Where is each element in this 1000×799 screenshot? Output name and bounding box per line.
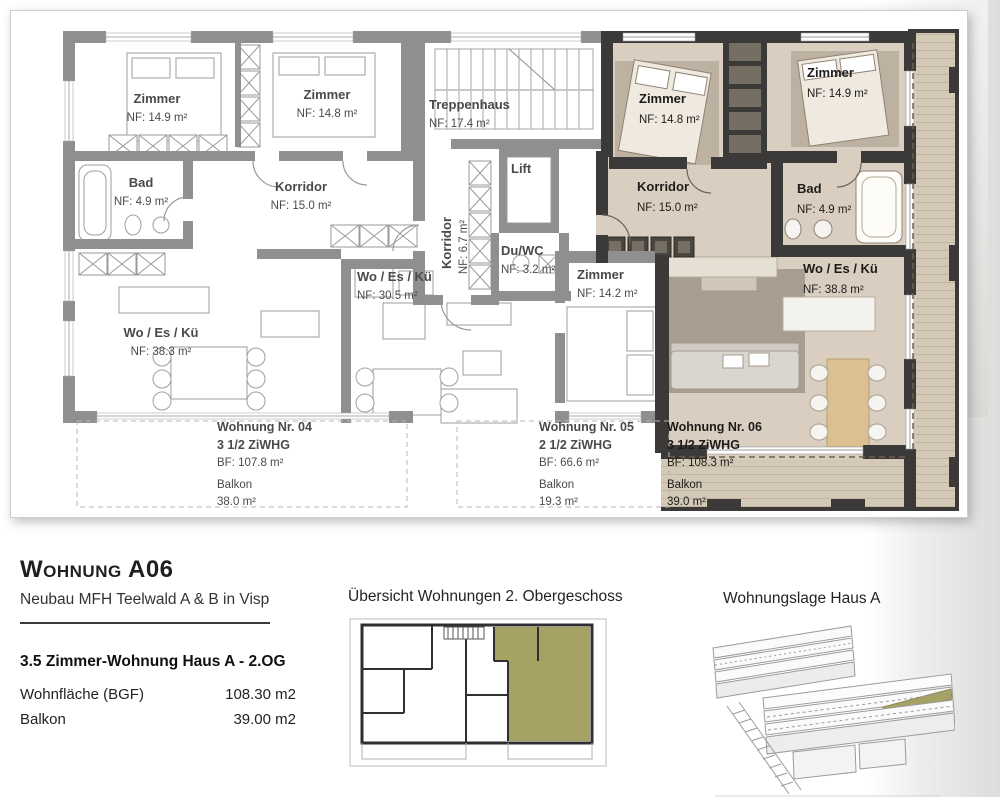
apt05-bf: BF: 66.6 m² <box>539 457 599 469</box>
toilet-symbol <box>125 215 141 235</box>
room-area-apt06-zimmer2: NF: 14.9 m² <box>807 88 868 100</box>
room-label-apt06-zimmer2: Zimmer <box>807 65 854 80</box>
bathtub-symbol <box>856 171 902 243</box>
dining-table-symbol <box>827 359 869 447</box>
sideboard-symbol <box>447 303 511 325</box>
room-area-apt06-bad: NF: 4.9 m² <box>797 204 851 216</box>
apt06-bf: BF: 108.3 m² <box>667 457 734 469</box>
room-area-apt06-zimmer1: NF: 14.8 m² <box>639 114 700 126</box>
room-area-apt04-korridor: NF: 15.0 m² <box>271 200 332 212</box>
room-label-apt04-wek: Wo / Es / Kü <box>124 325 199 340</box>
apt04-title: Wohnung Nr. 04 <box>217 420 312 434</box>
stairs-symbol <box>435 49 593 129</box>
room-area-apt06-korridor: NF: 15.0 m² <box>637 202 698 214</box>
room-label-apt04-korridor: Korridor <box>275 179 327 194</box>
room-label-apt06-korridor: Korridor <box>637 179 689 194</box>
room-area-duwc: NF: 3.2 m² <box>501 264 555 276</box>
room-area-apt05-zimmer: NF: 14.2 m² <box>577 288 638 300</box>
area-table: Wohnfläche (BGF) 108.30 m2 Balkon 39.00 … <box>20 686 296 728</box>
room-area-apt04-zimmer1: NF: 14.9 m² <box>127 112 188 124</box>
bed-symbol <box>618 60 711 164</box>
haus-a-sketch <box>705 614 955 799</box>
sofa-symbol <box>261 311 319 337</box>
overview-mini-plan <box>348 617 608 769</box>
apt05-balkon-label: Balkon <box>539 479 574 491</box>
mini-plan-stairs <box>444 627 484 639</box>
armchair-symbol <box>383 303 425 339</box>
room-label-apt04-bad: Bad <box>129 175 154 190</box>
location-title: Wohnungslage Haus A <box>705 590 967 608</box>
sink-symbol <box>153 217 169 233</box>
kitchen-island-symbol <box>119 287 209 313</box>
room-area-apt05-wek: NF: 30.5 m² <box>357 290 418 302</box>
kitchen-counter-symbol <box>667 257 777 277</box>
apt06-type: 3 1/2 ZiWHG <box>667 438 740 452</box>
sink-symbol <box>814 220 832 238</box>
mini-plan-balconies <box>362 743 592 759</box>
room-label-apt05-wek: Wo / Es / Kü <box>357 269 432 284</box>
room-label-duwc: Du/WC <box>501 243 544 258</box>
room-label-apt05-zimmer: Zimmer <box>577 267 624 282</box>
apt06-balkon-area: 39.0 m² <box>667 496 706 508</box>
apt06-balkon-label: Balkon <box>667 479 702 491</box>
toilet-symbol <box>785 219 801 239</box>
area-value: 39.00 m2 <box>233 711 296 728</box>
room-area-apt06-wek: NF: 38.8 m² <box>803 284 864 296</box>
apt05-type: 2 1/2 ZiWHG <box>539 438 612 452</box>
area-label: Wohnfläche (BGF) <box>20 686 144 703</box>
overview-section: Übersicht Wohnungen 2. Obergeschoss <box>348 588 638 769</box>
apt04-bf: BF: 107.8 m² <box>217 457 284 469</box>
room-label-common-korridor: Korridor <box>439 217 454 269</box>
location-section: Wohnungslage Haus A <box>705 590 967 799</box>
room-area-apt04-wek: NF: 38.3 m² <box>131 346 192 358</box>
apt04-balkon-label: Balkon <box>217 479 252 491</box>
room-label-apt06-wek: Wo / Es / Kü <box>803 261 878 276</box>
apt05-title: Wohnung Nr. 05 <box>539 420 634 434</box>
info-panel: Wohnung A06 Neubau MFH Teelwald A & B in… <box>20 556 310 736</box>
room-label-apt06-bad: Bad <box>797 181 822 196</box>
room-label-treppenhaus: Treppenhaus <box>429 97 510 112</box>
apt04-balkon-area: 38.0 m² <box>217 496 256 508</box>
apt04-type: 3 1/2 ZiWHG <box>217 438 290 452</box>
table-row: Wohnfläche (BGF) 108.30 m2 <box>20 686 296 703</box>
room-area-common-korridor: NF: 6.7 m² <box>458 220 470 274</box>
project-subtitle: Neubau MFH Teelwald A & B in Visp <box>20 591 310 609</box>
room-label-apt04-zimmer1: Zimmer <box>134 91 181 106</box>
area-label: Balkon <box>20 711 66 728</box>
page-title: Wohnung A06 <box>20 556 310 584</box>
room-area-apt04-bad: NF: 4.9 m² <box>114 196 168 208</box>
dining-table-symbol <box>373 369 441 415</box>
floor-plan: Zimmer NF: 14.9 m² Zimmer NF: 14.8 m² Ba… <box>10 10 968 518</box>
closet-column-insets <box>729 43 761 153</box>
room-label-apt04-zimmer2: Zimmer <box>304 87 351 102</box>
overview-title: Übersicht Wohnungen 2. Obergeschoss <box>348 588 638 606</box>
room-label-apt06-zimmer1: Zimmer <box>639 91 686 106</box>
room-area-apt04-zimmer2: NF: 14.8 m² <box>297 108 358 120</box>
area-value: 108.30 m2 <box>225 686 296 703</box>
divider <box>20 622 270 624</box>
kitchen-island-symbol <box>783 297 875 331</box>
room-area-treppenhaus: NF: 17.4 m² <box>429 118 490 130</box>
table-row: Balkon 39.00 m2 <box>20 711 296 728</box>
apt05-balkon-area: 19.3 m² <box>539 496 578 508</box>
coffee-table-symbol <box>463 351 501 375</box>
apartment-heading: 3.5 Zimmer-Wohnung Haus A - 2.OG <box>20 653 310 671</box>
room-label-lift: Lift <box>511 161 532 176</box>
apt06-title: Wohnung Nr. 06 <box>667 420 762 434</box>
